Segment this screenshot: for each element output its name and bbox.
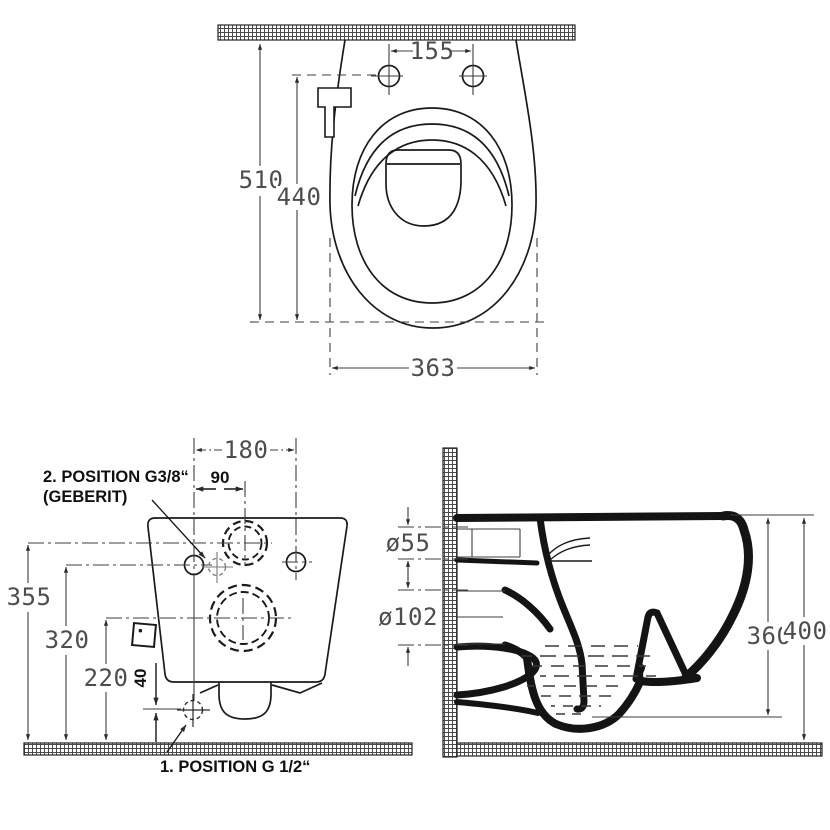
flush-jet-lines — [545, 538, 592, 561]
dim-d55: ø55 — [386, 507, 431, 579]
dim-90: 90 — [196, 468, 243, 489]
dim-180: 180 — [196, 436, 294, 464]
dim-400: 400 — [782, 518, 827, 740]
profile-supply-wedge — [457, 560, 537, 563]
bowl-inner-rim — [352, 108, 512, 303]
profile-front-lip — [457, 646, 537, 695]
dim-155-text: 155 — [410, 37, 455, 65]
side-fitting-square — [132, 623, 156, 647]
dim-90-text: 90 — [211, 468, 230, 487]
dim-155: 155 — [391, 37, 471, 65]
dim-363: 363 — [330, 238, 537, 382]
label-position1: 1. POSITION G 1/2“ — [160, 758, 310, 776]
profile-top-deck — [457, 516, 723, 518]
flush-opening — [386, 150, 461, 226]
wall-hatch-top — [218, 25, 575, 40]
top-view: 155 510 440 363 — [218, 25, 575, 382]
profile-back-shell — [686, 516, 748, 677]
front-view: 180 90 355 320 220 — [6, 436, 412, 776]
dim-355-text: 355 — [7, 583, 52, 611]
drawing-canvas: 155 510 440 363 — [0, 0, 830, 830]
dim-d102-text: ø102 — [378, 603, 438, 631]
dim-40-text: 40 — [131, 669, 150, 688]
dim-220: 220 — [84, 620, 130, 740]
technical-drawing-page: 155 510 440 363 — [0, 0, 830, 830]
wall-hatch-side — [443, 448, 457, 757]
rim-arc-upper — [355, 124, 509, 196]
dim-d55-text: ø55 — [386, 529, 431, 557]
dim-d102: ø102 — [378, 572, 438, 666]
crosshair-g12 — [177, 694, 210, 727]
dim-440-text: 440 — [277, 183, 322, 211]
dim-220-text: 220 — [84, 664, 129, 692]
label-position2-line2: (GEBERIT) — [43, 488, 127, 506]
dim-40: 40 — [131, 663, 181, 742]
dim-363-text: 363 — [411, 354, 456, 382]
profile-front-underside — [457, 702, 538, 713]
flush-connector-bracket — [318, 88, 351, 137]
floor-hatch-side — [457, 743, 822, 756]
dim-400-text: 400 — [783, 617, 828, 645]
floor-hatch-front — [24, 743, 412, 755]
dim-510: 510 — [238, 44, 283, 320]
label-position2-line1: 2. POSITION G3/8“ — [43, 468, 189, 486]
leader-g38 — [152, 500, 205, 558]
profile-drain-top — [505, 590, 550, 629]
dim-320-text: 320 — [45, 626, 90, 654]
dim-180-text: 180 — [224, 436, 269, 464]
outlet-tongue — [219, 682, 271, 719]
side-view: ø55 ø102 360 400 — [378, 448, 827, 757]
